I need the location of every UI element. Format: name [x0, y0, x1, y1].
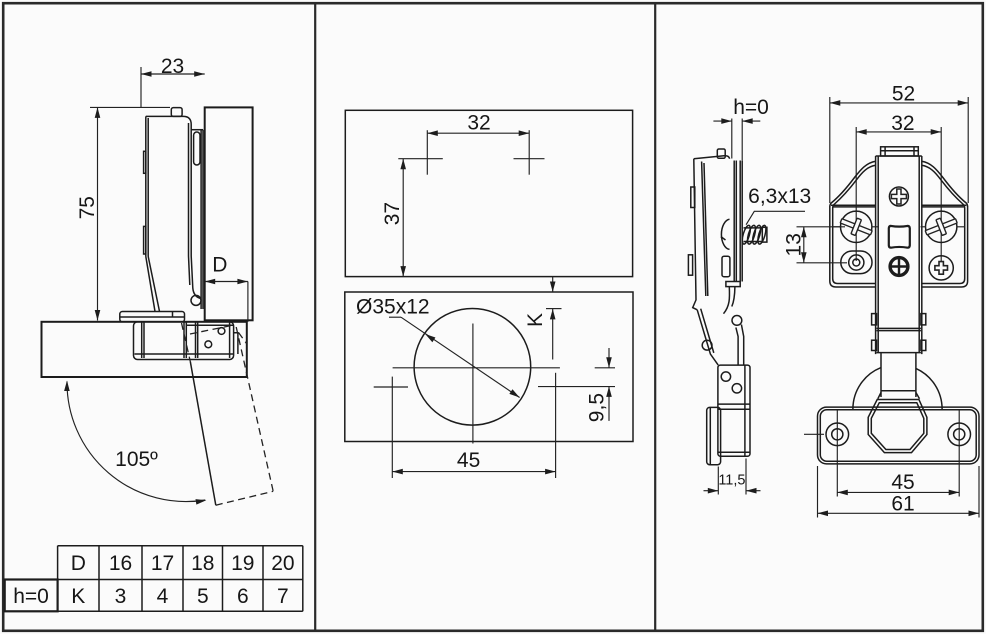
svg-text:37: 37	[381, 202, 404, 225]
svg-text:18: 18	[191, 552, 214, 575]
svg-text:52: 52	[892, 83, 915, 106]
svg-text:45: 45	[457, 449, 480, 472]
svg-text:105º: 105º	[115, 448, 158, 471]
svg-text:4: 4	[157, 585, 169, 608]
svg-text:20: 20	[271, 552, 294, 575]
svg-text:3: 3	[115, 585, 127, 608]
svg-text:h=0: h=0	[13, 585, 49, 608]
svg-text:7: 7	[277, 585, 289, 608]
svg-text:K: K	[71, 585, 85, 608]
svg-text:5: 5	[197, 585, 209, 608]
svg-text:6,3x13: 6,3x13	[748, 185, 811, 208]
svg-text:16: 16	[109, 552, 132, 575]
svg-text:17: 17	[151, 552, 174, 575]
svg-text:75: 75	[76, 196, 99, 219]
svg-text:h=0: h=0	[733, 96, 769, 119]
svg-text:11,5: 11,5	[718, 472, 745, 488]
svg-text:32: 32	[467, 112, 490, 135]
svg-text:19: 19	[231, 552, 254, 575]
svg-text:Ø35x12: Ø35x12	[356, 296, 430, 319]
svg-text:6: 6	[237, 585, 249, 608]
svg-text:D: D	[212, 254, 227, 277]
svg-text:9,5: 9,5	[586, 393, 609, 422]
svg-text:61: 61	[891, 492, 914, 515]
svg-text:D: D	[71, 552, 86, 575]
svg-text:45: 45	[891, 471, 914, 494]
svg-text:K: K	[524, 313, 547, 327]
